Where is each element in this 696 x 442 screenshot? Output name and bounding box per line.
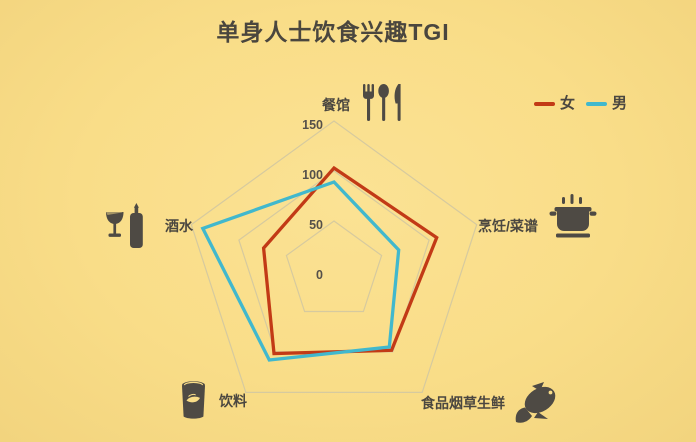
tick-label-50: 50 <box>309 218 323 232</box>
series-line-female <box>264 168 437 354</box>
grid-ring-50 <box>286 221 381 312</box>
beverage-can-icon <box>179 381 208 420</box>
wine-icon <box>105 203 147 249</box>
axis-label-beverages: 饮料 <box>219 391 247 411</box>
cutlery-icon <box>361 84 405 121</box>
tick-label-150: 150 <box>302 118 323 132</box>
fish-icon <box>513 381 559 425</box>
axis-label-restaurant: 餐馆 <box>270 95 350 115</box>
cooking-pot-icon <box>549 194 597 240</box>
series-lines <box>203 168 437 360</box>
axis-label-food-tobacco-fresh: 食品烟草生鲜 <box>421 393 505 413</box>
tick-label-0: 0 <box>316 268 323 282</box>
series-line-male <box>203 182 399 360</box>
chart-canvas: 单身人士饮食兴趣TGI 女 男 050100150 餐馆 烹饪/菜谱 食品烟草生… <box>0 0 696 442</box>
axis-label-cooking-recipes: 烹饪/菜谱 <box>478 216 538 236</box>
tick-label-100: 100 <box>302 168 323 182</box>
